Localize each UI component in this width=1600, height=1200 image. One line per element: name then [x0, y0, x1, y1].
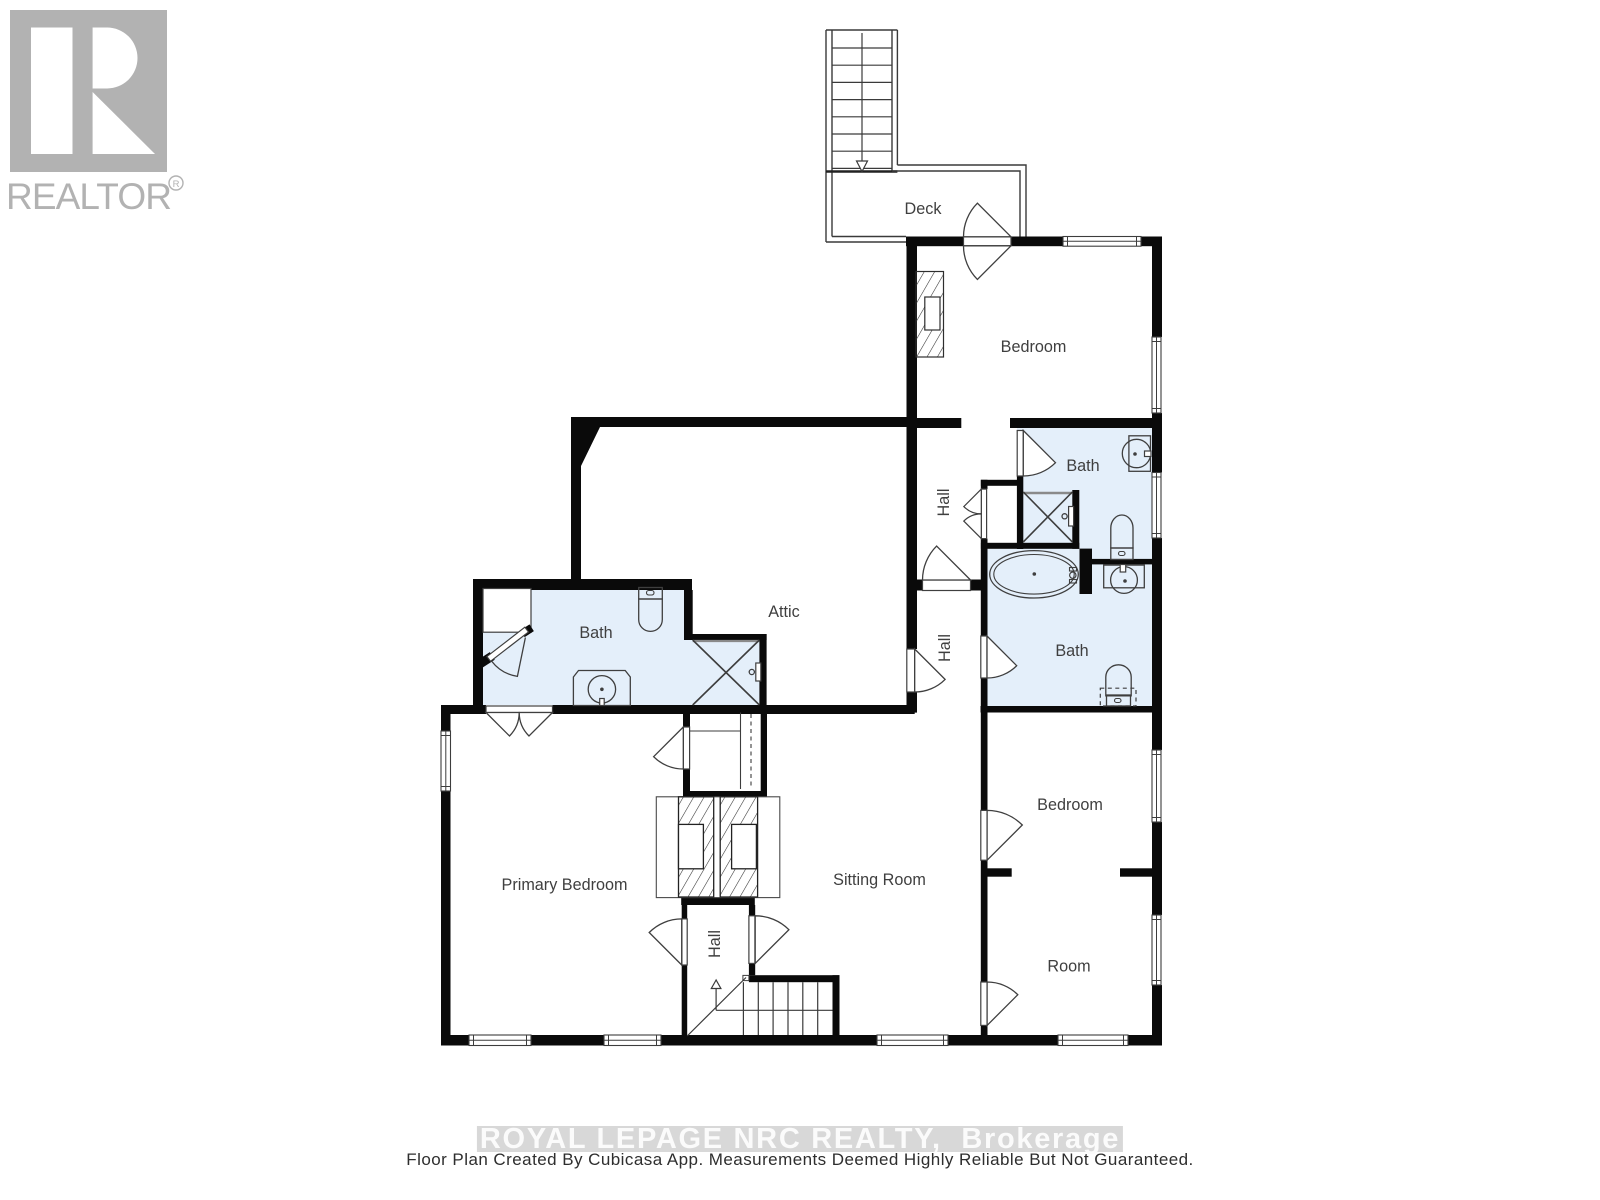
svg-text:Bedroom: Bedroom [1001, 338, 1067, 356]
svg-text:Hall: Hall [935, 489, 953, 517]
svg-text:Bath: Bath [579, 624, 612, 642]
svg-text:Sitting Room: Sitting Room [833, 871, 926, 889]
svg-text:R: R [173, 179, 180, 190]
svg-text:REALTOR: REALTOR [6, 176, 171, 217]
svg-text:Attic: Attic [768, 603, 799, 621]
svg-text:Bath: Bath [1055, 642, 1088, 660]
svg-text:Room: Room [1047, 958, 1090, 976]
svg-text:Hall: Hall [936, 634, 954, 662]
svg-text:Deck: Deck [905, 200, 943, 218]
svg-text:Primary Bedroom: Primary Bedroom [502, 876, 628, 894]
svg-text:Bath: Bath [1066, 457, 1099, 475]
svg-text:Hall: Hall [706, 930, 724, 958]
svg-text:Bedroom: Bedroom [1037, 796, 1103, 814]
